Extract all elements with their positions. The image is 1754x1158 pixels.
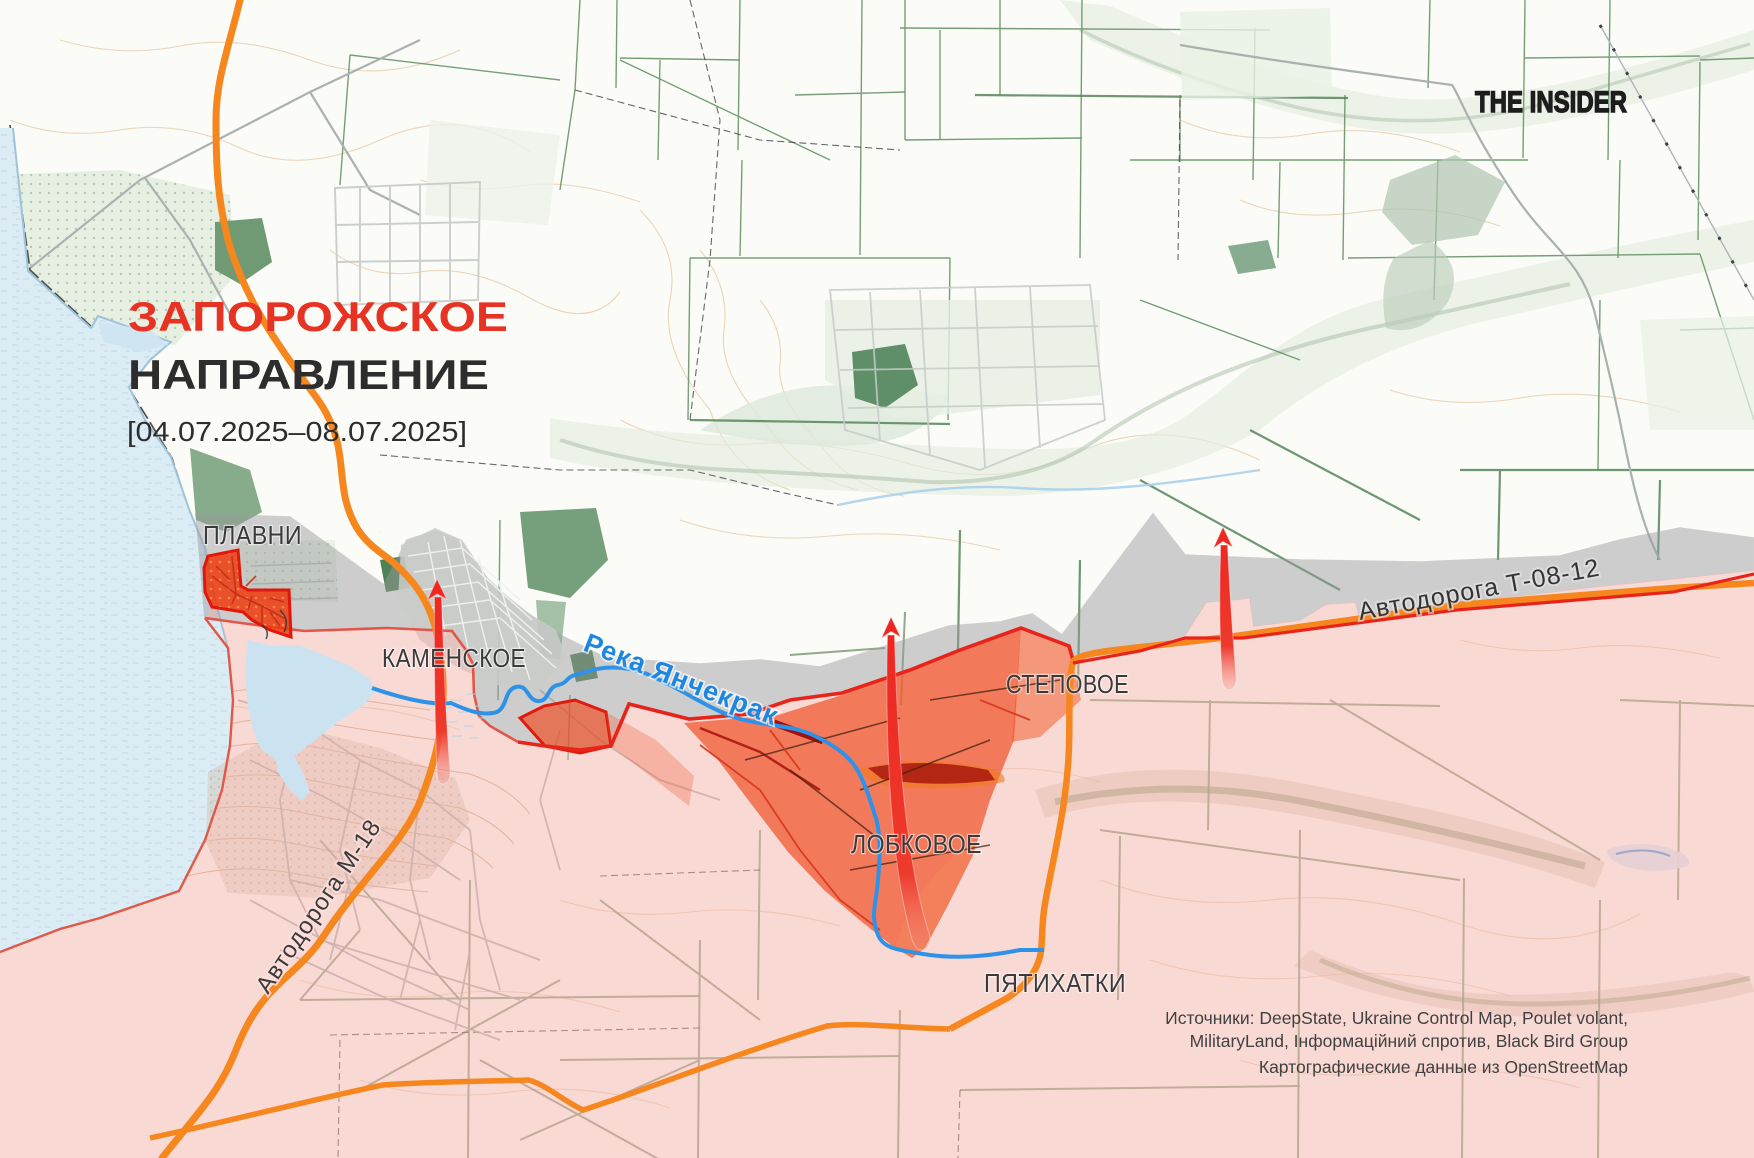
svg-text:Источники: DeepState, Ukraine: Источники: DeepState, Ukraine Control Ma…	[1165, 1008, 1628, 1028]
svg-text:THE INSIDER: THE INSIDER	[1475, 86, 1627, 119]
svg-text:НАПРАВЛЕНИЕ: НАПРАВЛЕНИЕ	[128, 351, 489, 398]
svg-text:ПЛАВНИ: ПЛАВНИ	[203, 520, 302, 550]
svg-text:КАМЕНСКОЕ: КАМЕНСКОЕ	[382, 643, 526, 673]
svg-text:СТЕПОВОЕ: СТЕПОВОЕ	[1006, 669, 1129, 699]
svg-text:Картографические данные из Ope: Картографические данные из OpenStreetMap	[1259, 1057, 1628, 1077]
svg-text:[04.07.2025–08.07.2025]: [04.07.2025–08.07.2025]	[127, 416, 467, 447]
svg-text:MilitaryLand, Інформаційний сп: MilitaryLand, Інформаційний спротив, Bla…	[1190, 1031, 1628, 1051]
svg-text:ЗАПОРОЖСКОЕ: ЗАПОРОЖСКОЕ	[128, 293, 508, 340]
svg-text:ПЯТИХАТКИ: ПЯТИХАТКИ	[984, 968, 1126, 998]
svg-text:ЛОБКОВОЕ: ЛОБКОВОЕ	[851, 829, 982, 859]
